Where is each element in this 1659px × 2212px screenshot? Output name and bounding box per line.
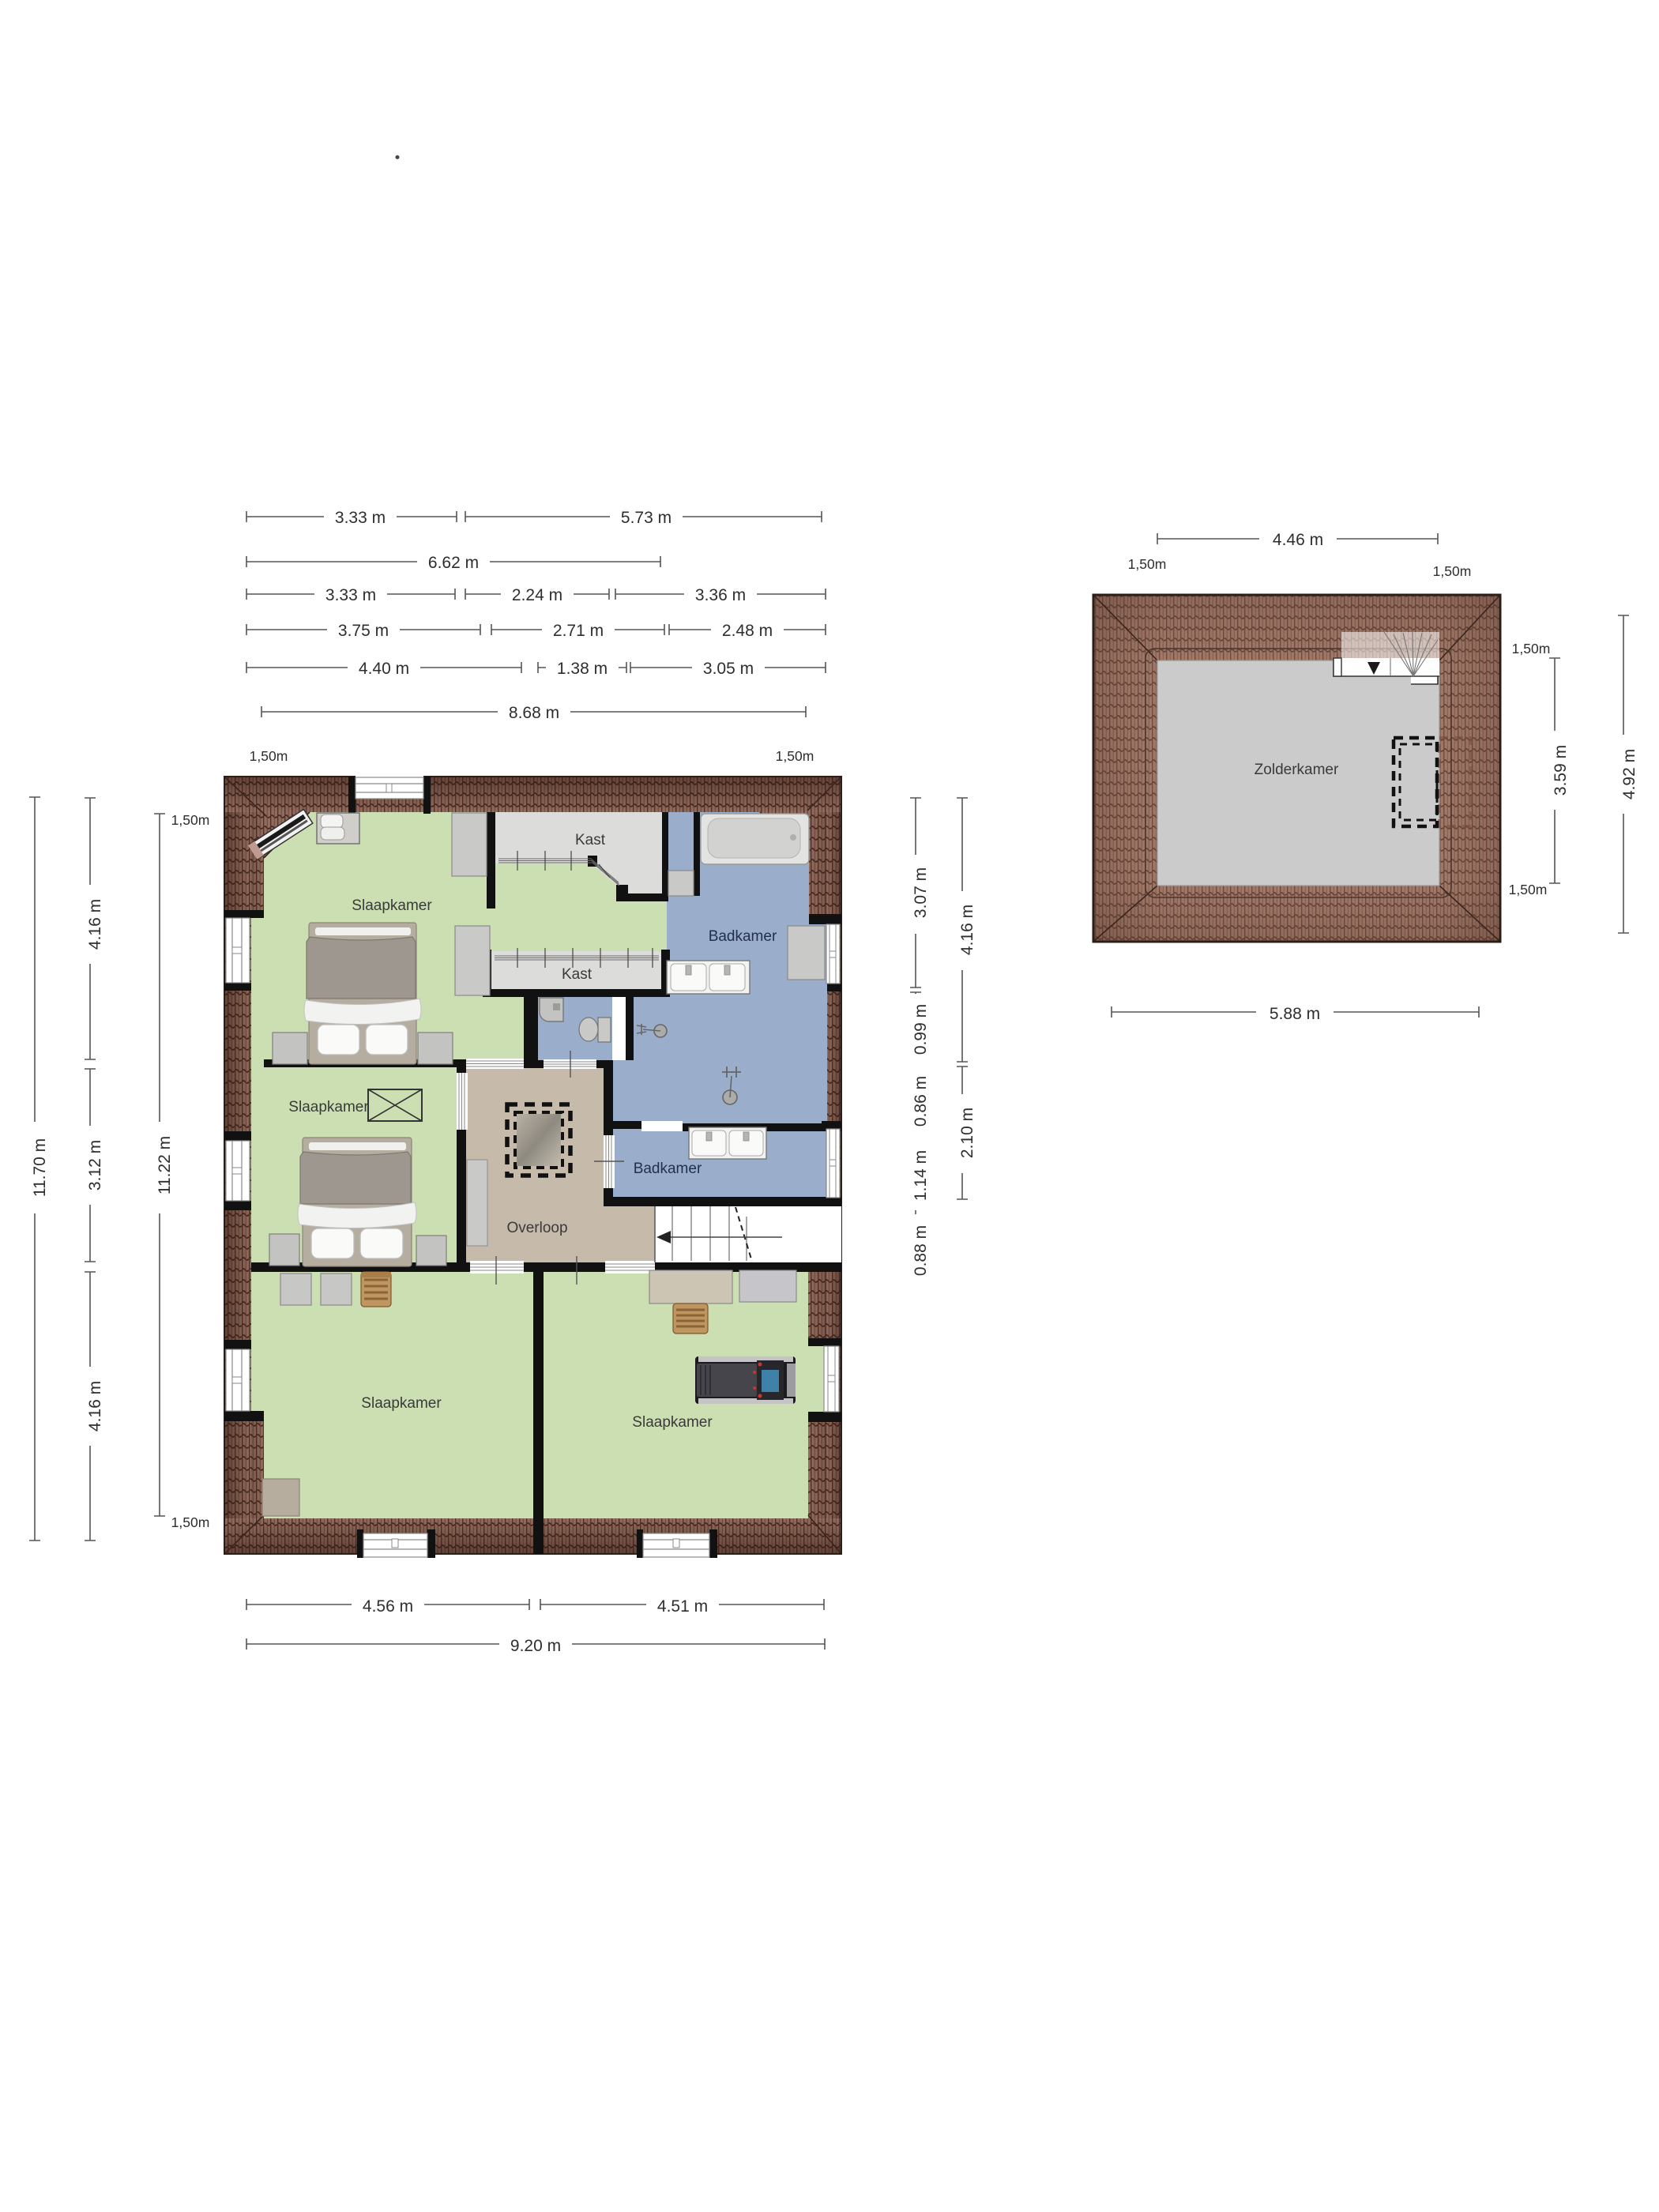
svg-text:3.36 m: 3.36 m <box>695 586 746 604</box>
svg-text:Kast: Kast <box>575 832 606 848</box>
svg-text:4.40 m: 4.40 m <box>359 660 409 678</box>
svg-text:11.70 m: 11.70 m <box>31 1138 49 1197</box>
svg-text:0.86 m: 0.86 m <box>912 1076 930 1127</box>
svg-text:1,50m: 1,50m <box>250 748 288 764</box>
svg-text:2.24 m: 2.24 m <box>512 586 562 604</box>
svg-text:3.75 m: 3.75 m <box>338 622 389 640</box>
svg-text:3.59 m: 3.59 m <box>1552 745 1570 796</box>
svg-text:1,50m: 1,50m <box>1512 641 1551 656</box>
svg-text:8.68 m: 8.68 m <box>509 704 559 722</box>
svg-text:4.51 m: 4.51 m <box>657 1597 708 1616</box>
svg-text:2.71 m: 2.71 m <box>553 622 604 640</box>
svg-text:Slaapkamer: Slaapkamer <box>352 897 432 914</box>
svg-text:1,50m: 1,50m <box>171 1514 210 1530</box>
svg-text:5.73 m: 5.73 m <box>621 509 671 527</box>
svg-text:Slaapkamer: Slaapkamer <box>288 1099 369 1115</box>
svg-text:Slaapkamer: Slaapkamer <box>361 1395 442 1412</box>
svg-text:3.05 m: 3.05 m <box>703 660 754 678</box>
svg-text:Overloop: Overloop <box>506 1220 567 1236</box>
svg-text:Zolderkamer: Zolderkamer <box>1255 762 1339 778</box>
svg-text:3.07 m: 3.07 m <box>912 867 930 918</box>
svg-text:6.62 m: 6.62 m <box>428 554 479 572</box>
svg-text:1,50m: 1,50m <box>1128 556 1167 572</box>
svg-text:1,50m: 1,50m <box>776 748 814 764</box>
svg-text:4.56 m: 4.56 m <box>363 1597 413 1616</box>
svg-text:11.22 m: 11.22 m <box>156 1136 174 1194</box>
svg-text:5.88 m: 5.88 m <box>1270 1005 1320 1023</box>
svg-text:Badkamer: Badkamer <box>634 1161 702 1177</box>
svg-text:1,50m: 1,50m <box>171 812 210 828</box>
svg-text:3.12 m: 3.12 m <box>86 1140 104 1191</box>
svg-text:4.92 m: 4.92 m <box>1620 749 1638 799</box>
svg-text:9.20 m: 9.20 m <box>510 1637 561 1655</box>
svg-text:0.88 m: 0.88 m <box>912 1225 930 1276</box>
svg-text:4.16 m: 4.16 m <box>86 899 104 950</box>
svg-text:4.16 m: 4.16 m <box>86 1381 104 1431</box>
svg-text:2.48 m: 2.48 m <box>722 622 773 640</box>
svg-text:Slaapkamer: Slaapkamer <box>632 1414 713 1431</box>
svg-text:4.46 m: 4.46 m <box>1273 531 1323 549</box>
svg-text:0.99 m: 0.99 m <box>912 1004 930 1055</box>
svg-text:3.33 m: 3.33 m <box>335 509 386 527</box>
svg-text:1,50m: 1,50m <box>1509 882 1548 897</box>
svg-text:1,50m: 1,50m <box>1433 563 1472 579</box>
svg-text:2.10 m: 2.10 m <box>958 1108 976 1158</box>
svg-text:1.38 m: 1.38 m <box>557 660 608 678</box>
svg-text:Badkamer: Badkamer <box>709 928 777 945</box>
svg-text:Kast: Kast <box>562 966 592 983</box>
svg-text:3.33 m: 3.33 m <box>325 586 376 604</box>
svg-text:4.16 m: 4.16 m <box>958 905 976 955</box>
svg-text:1.14 m: 1.14 m <box>912 1150 930 1201</box>
